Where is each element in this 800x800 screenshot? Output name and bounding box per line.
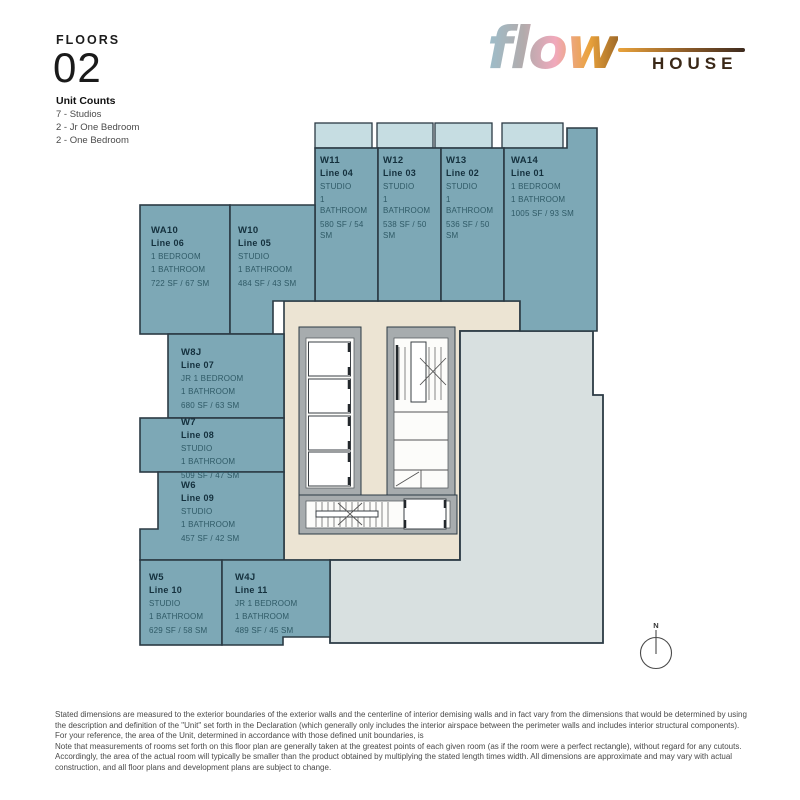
unit-id: W12 <box>383 155 436 166</box>
unit-type: JR 1 BEDROOM <box>235 598 327 609</box>
unit-line: Line 04 <box>320 168 373 178</box>
unit-type: JR 1 BEDROOM <box>181 373 281 384</box>
unit-bath: 1 BATHROOM <box>149 611 219 622</box>
unit-line: Line 03 <box>383 168 436 178</box>
unit-line: Line 10 <box>149 585 219 595</box>
unit-label-wa14: WA14 Line 01 1 BEDROOM 1 BATHROOM 1005 S… <box>511 155 596 219</box>
unit-area: 538 SF / 50 SM <box>383 219 436 241</box>
unit-bath: 1 BATHROOM <box>181 456 281 467</box>
unit-id: W4J <box>235 572 327 583</box>
unit-bath: 1 BATHROOM <box>446 194 499 216</box>
unit-label-w7: W7 Line 08 STUDIO 1 BATHROOM 509 SF / 47… <box>181 417 281 481</box>
unit-id: W11 <box>320 155 373 166</box>
unit-label-w5: W5 Line 10 STUDIO 1 BATHROOM 629 SF / 58… <box>149 572 219 636</box>
unit-id: W8J <box>181 347 281 358</box>
unit-label-w12: W12 Line 03 STUDIO 1 BATHROOM 538 SF / 5… <box>383 155 436 241</box>
unit-line: Line 08 <box>181 430 281 440</box>
unit-type: 1 BEDROOM <box>151 251 231 262</box>
unit-id: W5 <box>149 572 219 583</box>
unit-bath: 1 BATHROOM <box>238 264 312 275</box>
unit-area: 722 SF / 67 SM <box>151 278 231 289</box>
floor-plan-page: { "colors": { "unit_fill": "#7da8b6", "b… <box>0 0 800 800</box>
unit-bath: 1 BATHROOM <box>511 194 596 205</box>
unit-bath: 1 BATHROOM <box>320 194 373 216</box>
unit-type: STUDIO <box>238 251 312 262</box>
unit-line: Line 05 <box>238 238 312 248</box>
unit-type: 1 BEDROOM <box>511 181 596 192</box>
unit-area: 536 SF / 50 SM <box>446 219 499 241</box>
unit-id: W6 <box>181 480 281 491</box>
unit-type: STUDIO <box>383 181 436 192</box>
unit-id: WA10 <box>151 225 231 236</box>
unit-line: Line 09 <box>181 493 281 503</box>
unit-line: Line 07 <box>181 360 281 370</box>
unit-line: Line 02 <box>446 168 499 178</box>
unit-area: 680 SF / 63 SM <box>181 400 281 411</box>
unit-type: STUDIO <box>149 598 219 609</box>
unit-id: W7 <box>181 417 281 428</box>
unit-label-w10: W10 Line 05 STUDIO 1 BATHROOM 484 SF / 4… <box>238 225 312 289</box>
unit-area: 629 SF / 58 SM <box>149 625 219 636</box>
unit-label-w4j: W4J Line 11 JR 1 BEDROOM 1 BATHROOM 489 … <box>235 572 327 636</box>
stair-core-lower <box>299 495 457 534</box>
unit-id: WA14 <box>511 155 596 166</box>
unit-line: Line 01 <box>511 168 596 178</box>
disclaimer-paragraph-2: Note that measurements of rooms set fort… <box>55 742 747 774</box>
north-label: N <box>650 621 662 630</box>
unit-bath: 1 BATHROOM <box>181 386 281 397</box>
floor-plan-svg <box>0 0 800 800</box>
stair-core-upper <box>387 327 455 495</box>
unit-area: 484 SF / 43 SM <box>238 278 312 289</box>
unit-line: Line 06 <box>151 238 231 248</box>
unit-bath: 1 BATHROOM <box>383 194 436 216</box>
unit-id: W13 <box>446 155 499 166</box>
unit-label-wa10: WA10 Line 06 1 BEDROOM 1 BATHROOM 722 SF… <box>151 225 231 289</box>
unit-area: 580 SF / 54 SM <box>320 219 373 241</box>
unit-area: 457 SF / 42 SM <box>181 533 281 544</box>
unit-bath: 1 BATHROOM <box>151 264 231 275</box>
unit-label-w13: W13 Line 02 STUDIO 1 BATHROOM 536 SF / 5… <box>446 155 499 241</box>
north-arrow <box>641 630 672 669</box>
unit-area: 509 SF / 47 SM <box>181 470 281 481</box>
elevator-core <box>299 327 361 495</box>
unit-id: W10 <box>238 225 312 236</box>
unit-type: STUDIO <box>181 443 281 454</box>
unit-line: Line 11 <box>235 585 327 595</box>
unit-label-w6: W6 Line 09 STUDIO 1 BATHROOM 457 SF / 42… <box>181 480 281 544</box>
unit-bath: 1 BATHROOM <box>181 519 281 530</box>
unit-bath: 1 BATHROOM <box>235 611 327 622</box>
unit-label-w11: W11 Line 04 STUDIO 1 BATHROOM 580 SF / 5… <box>320 155 373 241</box>
unit-type: STUDIO <box>446 181 499 192</box>
disclaimer: Stated dimensions are measured to the ex… <box>55 710 747 773</box>
unit-area: 1005 SF / 93 SM <box>511 208 596 219</box>
unit-label-w8j: W8J Line 07 JR 1 BEDROOM 1 BATHROOM 680 … <box>181 347 281 411</box>
unit-type: STUDIO <box>320 181 373 192</box>
unit-area: 489 SF / 45 SM <box>235 625 327 636</box>
disclaimer-paragraph-1: Stated dimensions are measured to the ex… <box>55 710 747 742</box>
unit-type: STUDIO <box>181 506 281 517</box>
balcony-strips <box>315 123 563 148</box>
